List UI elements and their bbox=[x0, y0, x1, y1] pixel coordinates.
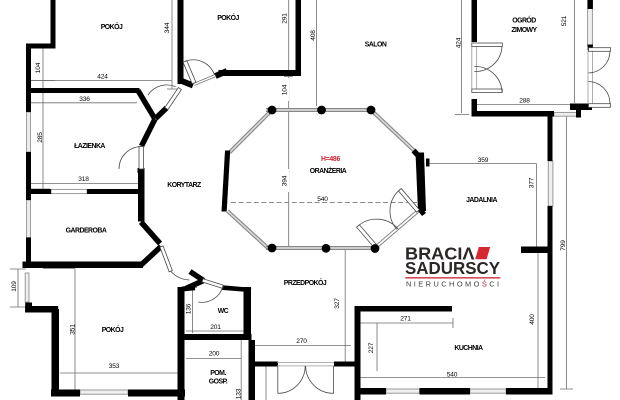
svg-text:POKÓJ: POKÓJ bbox=[101, 22, 123, 31]
svg-text:336: 336 bbox=[79, 96, 90, 103]
svg-text:133: 133 bbox=[236, 388, 243, 399]
svg-text:ORANŻERIA: ORANŻERIA bbox=[310, 166, 347, 175]
svg-text:285: 285 bbox=[37, 132, 44, 143]
svg-text:WC: WC bbox=[218, 308, 229, 315]
svg-text:521: 521 bbox=[561, 15, 568, 26]
svg-text:SALON: SALON bbox=[365, 42, 387, 49]
svg-text:NIERUCHOMOŚCI: NIERUCHOMOŚCI bbox=[406, 279, 502, 288]
svg-text:424: 424 bbox=[97, 73, 108, 80]
svg-text:424: 424 bbox=[455, 37, 462, 48]
svg-text:540: 540 bbox=[317, 196, 328, 203]
svg-text:288: 288 bbox=[519, 97, 530, 104]
svg-text:OGRÓD: OGRÓD bbox=[512, 16, 536, 25]
svg-text:GARDEROBA: GARDEROBA bbox=[66, 228, 107, 235]
svg-text:GOSP.: GOSP. bbox=[209, 378, 228, 385]
svg-text:KUCHNIA: KUCHNIA bbox=[454, 345, 483, 352]
svg-text:394: 394 bbox=[281, 175, 288, 186]
svg-text:PRZEDPOKÓJ: PRZEDPOKÓJ bbox=[284, 278, 327, 287]
svg-text:227: 227 bbox=[368, 342, 375, 353]
svg-text:270: 270 bbox=[296, 338, 307, 345]
svg-text:ŁAZIENKA: ŁAZIENKA bbox=[74, 143, 105, 150]
svg-text:201: 201 bbox=[210, 324, 221, 331]
svg-text:200: 200 bbox=[209, 351, 220, 358]
svg-text:ZIMOWY: ZIMOWY bbox=[511, 27, 537, 34]
svg-text:400: 400 bbox=[529, 314, 536, 325]
svg-text:SADURSCY: SADURSCY bbox=[405, 258, 500, 278]
svg-text:POKÓJ: POKÓJ bbox=[102, 325, 124, 334]
svg-text:POM.: POM. bbox=[210, 370, 226, 377]
svg-text:799: 799 bbox=[560, 240, 567, 251]
svg-text:377: 377 bbox=[528, 177, 535, 188]
svg-text:353: 353 bbox=[109, 363, 120, 370]
svg-text:136: 136 bbox=[185, 303, 192, 314]
svg-text:JADALNIA: JADALNIA bbox=[466, 197, 497, 204]
svg-text:109: 109 bbox=[11, 281, 18, 292]
svg-text:540: 540 bbox=[447, 372, 458, 379]
svg-text:POKÓJ: POKÓJ bbox=[217, 13, 239, 22]
svg-text:318: 318 bbox=[78, 176, 89, 183]
svg-text:271: 271 bbox=[400, 315, 411, 322]
svg-text:KORYTARZ: KORYTARZ bbox=[167, 182, 202, 189]
svg-text:408: 408 bbox=[310, 30, 317, 41]
svg-text:351: 351 bbox=[69, 324, 76, 335]
svg-text:291: 291 bbox=[281, 13, 288, 24]
svg-text:104: 104 bbox=[281, 84, 288, 95]
svg-text:344: 344 bbox=[164, 22, 171, 33]
svg-text:327: 327 bbox=[334, 298, 341, 309]
svg-text:359: 359 bbox=[478, 157, 489, 164]
svg-text:104: 104 bbox=[35, 62, 42, 73]
svg-text:H=486: H=486 bbox=[321, 156, 340, 163]
